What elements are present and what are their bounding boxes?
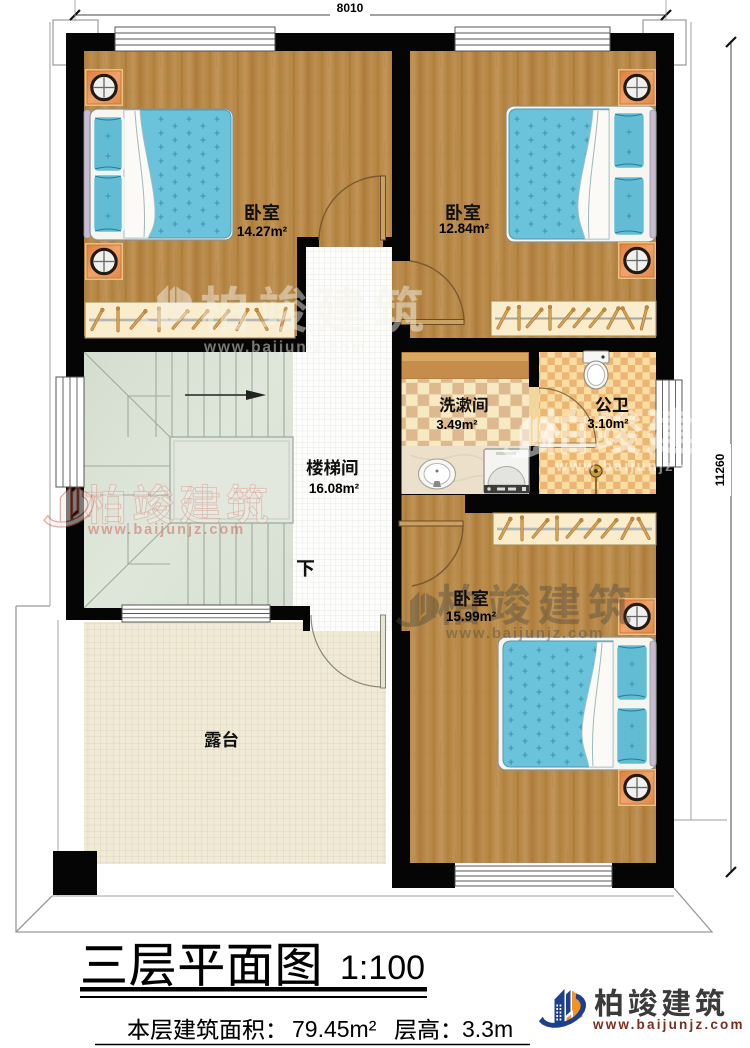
svg-text:1:100: 1:100 (340, 949, 425, 987)
svg-text:8010: 8010 (337, 1, 364, 15)
svg-text:www.baijunjz.com: www.baijunjz.com (445, 625, 604, 642)
svg-text:3.49m²: 3.49m² (436, 417, 478, 432)
svg-text:3.3m: 3.3m (462, 1016, 513, 1042)
svg-text:3.10m²: 3.10m² (587, 416, 629, 431)
svg-text:www.baijunjz.com: www.baijunjz.com (203, 339, 367, 356)
svg-text:79.45m²: 79.45m² (292, 1016, 377, 1042)
svg-text:www.baijunjz.com: www.baijunjz.com (592, 1017, 745, 1032)
svg-text:www.baijunjz.com: www.baijunjz.com (87, 522, 245, 538)
svg-text:12.84m²: 12.84m² (439, 221, 490, 236)
svg-text:www.baijunjz.com: www.baijunjz.com (555, 458, 717, 475)
svg-text:16.08m²: 16.08m² (309, 481, 360, 496)
svg-text:15.99m²: 15.99m² (446, 609, 497, 624)
svg-text:11260: 11260 (713, 453, 727, 486)
svg-text:14.27m²: 14.27m² (237, 224, 288, 239)
